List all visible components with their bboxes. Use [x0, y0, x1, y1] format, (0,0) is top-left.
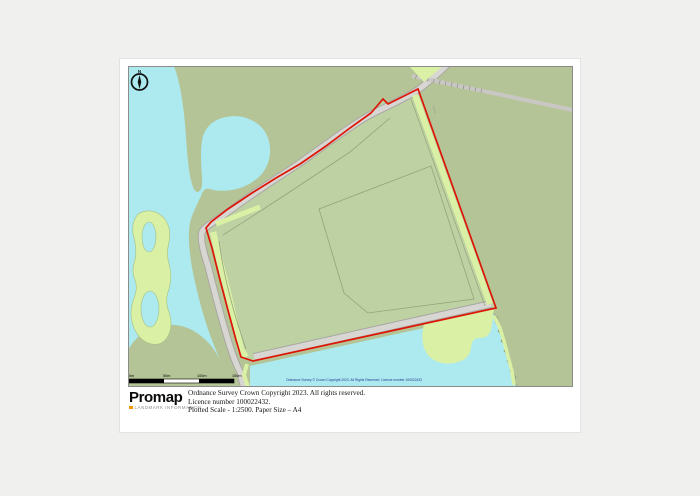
landmark-dot-icon [129, 406, 133, 410]
copyright-block: Ordnance Survey Crown Copyright 2023. Al… [188, 389, 365, 415]
map-canvas: Track Ordnance Survey © Crown Copyright … [128, 66, 573, 387]
print-preview-page: Track Ordnance Survey © Crown Copyright … [119, 58, 581, 433]
copyright-line-3: Plotted Scale - 1:2500. Paper Size – A4 [188, 406, 365, 415]
map-inline-copyright: Ordnance Survey © Crown Copyright 2023. … [286, 378, 422, 382]
island-lagoon-north [142, 222, 156, 252]
scale-label-100: 100m [197, 374, 207, 378]
copyright-line-2: Licence number 100022432. [188, 398, 365, 407]
compass-label: N [138, 69, 141, 74]
screen-background: Track Ordnance Survey © Crown Copyright … [0, 0, 700, 496]
scale-label-0: 0m [129, 374, 134, 378]
ordnance-survey-map: Track Ordnance Survey © Crown Copyright … [128, 66, 573, 387]
map-footer: Promap LANDMARK INFORMATION Ordnance Sur… [120, 388, 580, 434]
copyright-line-1: Ordnance Survey Crown Copyright 2023. Al… [188, 389, 365, 398]
scale-label-50: 50m [163, 374, 170, 378]
scale-label-150: 150m [232, 374, 242, 378]
island-lagoon-south [141, 291, 159, 327]
